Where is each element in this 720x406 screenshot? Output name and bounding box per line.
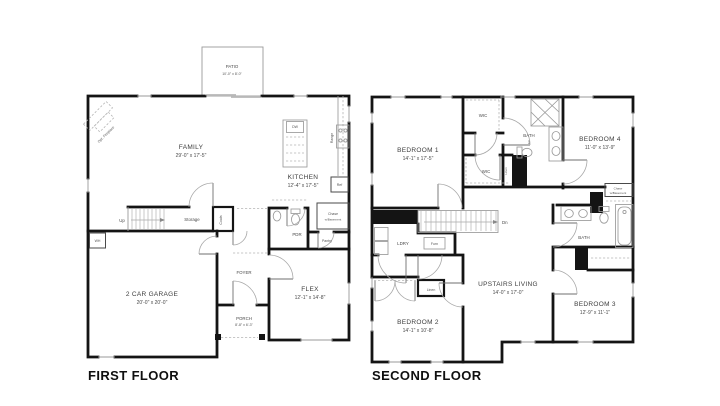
chase2-label-1: Chase: [614, 187, 623, 191]
floorplan-svg: PATIO 10'-0" x 8'-0": [0, 0, 720, 406]
kitchen-label: KITCHEN: [288, 174, 319, 181]
chase2-label-2: w/Basement: [610, 191, 627, 195]
chase-block: [590, 192, 603, 213]
first-floor-title: FIRST FLOOR: [88, 368, 179, 383]
bath-toilet: [600, 213, 608, 223]
tub-drain: [623, 210, 626, 213]
burner: [344, 139, 347, 142]
wic1-label: WIC: [479, 113, 488, 118]
first-floor-interior-walls: [88, 207, 349, 249]
washer-box: [375, 228, 389, 241]
shower-hatch: [531, 99, 559, 126]
chase-label-1: Chase: [328, 212, 338, 216]
bath-label: BATH: [578, 235, 589, 240]
island-cabinets: [286, 137, 304, 161]
porch-dims: 8'-8" x 6'-3": [235, 323, 253, 327]
pdr-toilet-tank: [291, 209, 300, 214]
flex-dims: 12'-1" x 14'-8": [295, 295, 326, 301]
dn-label: Dn: [502, 220, 508, 225]
wic2-label: WIC: [482, 169, 491, 174]
bath1-sink: [552, 147, 560, 156]
flex-label: FLEX: [301, 286, 319, 293]
tub-inner: [618, 207, 631, 245]
dryer-box: [375, 242, 389, 255]
bath1-label-1: BATH: [523, 133, 534, 138]
chase-label-2: w/Basement: [325, 218, 342, 222]
stairs-treads: [132, 209, 164, 229]
linen-label: Linen: [427, 288, 436, 292]
first-floor-windows: [88, 95, 349, 357]
upstairs-living-label: UPSTAIRS LIVING: [478, 281, 538, 288]
garage-label: 2 CAR GARAGE: [126, 291, 179, 298]
second-floor-plan: BEDROOM 1 14'-1" x 17'-5" WIC BATH 1 BED…: [372, 97, 633, 383]
bath-sink: [579, 210, 588, 218]
bedroom4-dims: 11'-0" x 13'-9": [585, 145, 616, 151]
burner: [344, 129, 347, 132]
floor-plan-canvas: PATIO 10'-0" x 8'-0": [0, 0, 720, 406]
bedroom4-label: BEDROOM 4: [579, 136, 621, 143]
first-floor-outer-walls: [88, 96, 349, 357]
wh-label: WH: [95, 239, 101, 243]
family-label: FAMILY: [179, 144, 204, 151]
closet-shelves: [374, 100, 631, 281]
pdr-toilet: [292, 214, 300, 225]
bath-counter: [561, 207, 591, 221]
stairs-treads: [421, 211, 496, 231]
ldry-label: LDRY: [397, 241, 409, 246]
porch-post: [215, 334, 221, 340]
first-floor-plan: PATIO 10'-0" x 8'-0": [83, 47, 349, 383]
chase-box-first: [317, 203, 349, 229]
storage-label: Storage: [184, 217, 200, 222]
patio-dims: 10'-0" x 8'-0": [222, 72, 242, 76]
stairs-arrow-head: [493, 220, 498, 224]
bedroom1-dims: 14'-1" x 17'-5": [403, 156, 434, 162]
chase-block: [575, 248, 588, 270]
ref-label: Ref: [337, 183, 342, 187]
opt-fireplace-label: Opt. Fireplace: [97, 125, 115, 143]
porch-label: PORCH: [236, 316, 252, 321]
up-label: Up: [119, 218, 125, 223]
stairwell-block: [372, 210, 418, 224]
bedroom3-label: BEDROOM 3: [574, 301, 616, 308]
coats-label: Coats: [219, 215, 223, 224]
burner: [339, 139, 342, 142]
coats-closet: [213, 207, 233, 231]
range-label: Range: [330, 133, 334, 143]
patio-label: PATIO: [226, 64, 239, 69]
kitchen-dims: 12'-4" x 17'-5": [288, 183, 319, 189]
pdr-sink: [273, 211, 281, 221]
bedroom3-dims: 12'-9" x 11'-1": [580, 310, 611, 316]
dw-label: DW: [292, 125, 299, 129]
bedroom2-dims: 14'-1" x 10'-8": [403, 328, 434, 334]
family-dims: 29'-0" x 17'-5": [176, 153, 207, 159]
bath1-sink: [552, 132, 560, 141]
furn-label: Furn: [431, 242, 438, 246]
garage-dims: 20'-0" x 20'-0": [137, 300, 168, 306]
pdr-label: PDR: [292, 232, 301, 237]
second-floor-title: SECOND FLOOR: [372, 368, 482, 383]
chase-block: [512, 155, 527, 187]
bedroom2-label: BEDROOM 2: [397, 319, 439, 326]
upstairs-living-dims: 14'-0" x 17'-0": [493, 290, 524, 296]
porch-post: [259, 334, 265, 340]
linen-side-label: Linen: [504, 167, 508, 175]
burner: [339, 129, 342, 132]
bedroom1-label: BEDROOM 1: [397, 147, 439, 154]
bath-sink: [565, 210, 574, 218]
pantry-label: Pantry: [322, 239, 332, 243]
foyer-label: FOYER: [236, 270, 251, 275]
